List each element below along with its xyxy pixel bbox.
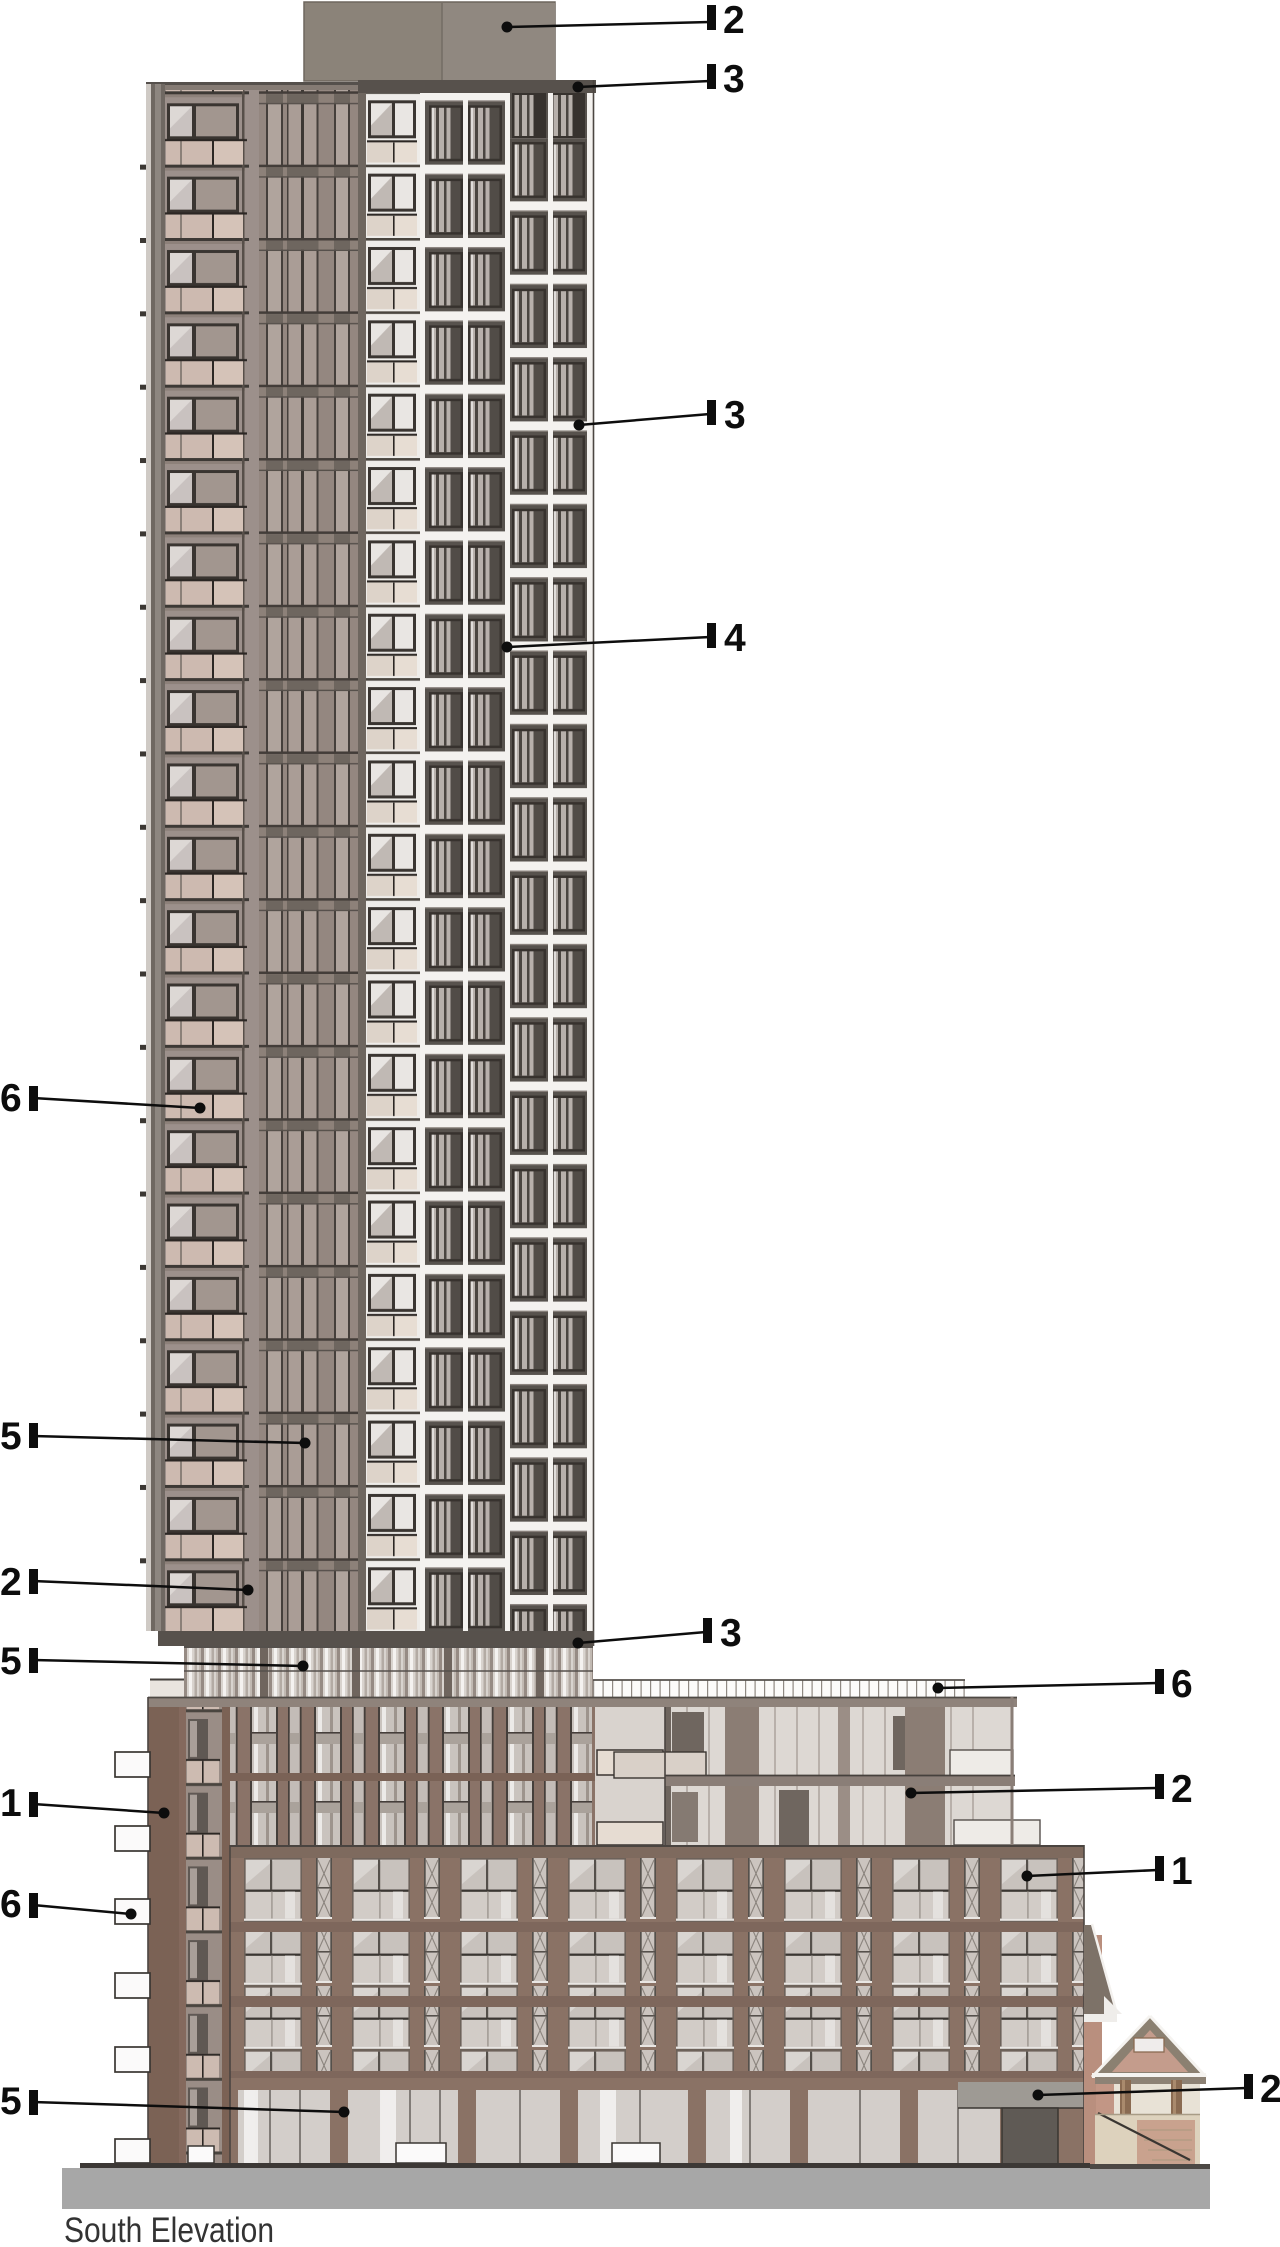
svg-text:1: 1 <box>0 1782 22 1825</box>
svg-text:3: 3 <box>724 394 746 437</box>
svg-text:3: 3 <box>723 58 745 101</box>
svg-text:1: 1 <box>1171 1850 1193 1893</box>
svg-text:2: 2 <box>723 0 745 42</box>
svg-text:5: 5 <box>0 2080 22 2123</box>
svg-text:2: 2 <box>0 1561 22 1604</box>
svg-text:5: 5 <box>0 1640 22 1683</box>
svg-text:3: 3 <box>720 1612 742 1655</box>
svg-text:South Elevation: South Elevation <box>64 2211 274 2247</box>
svg-text:5: 5 <box>0 1415 22 1458</box>
svg-text:6: 6 <box>0 1883 22 1926</box>
svg-text:2: 2 <box>1260 2068 1280 2111</box>
svg-text:6: 6 <box>0 1077 22 1120</box>
svg-text:2: 2 <box>1171 1768 1193 1811</box>
svg-text:4: 4 <box>724 617 746 660</box>
svg-text:6: 6 <box>1171 1663 1193 1706</box>
